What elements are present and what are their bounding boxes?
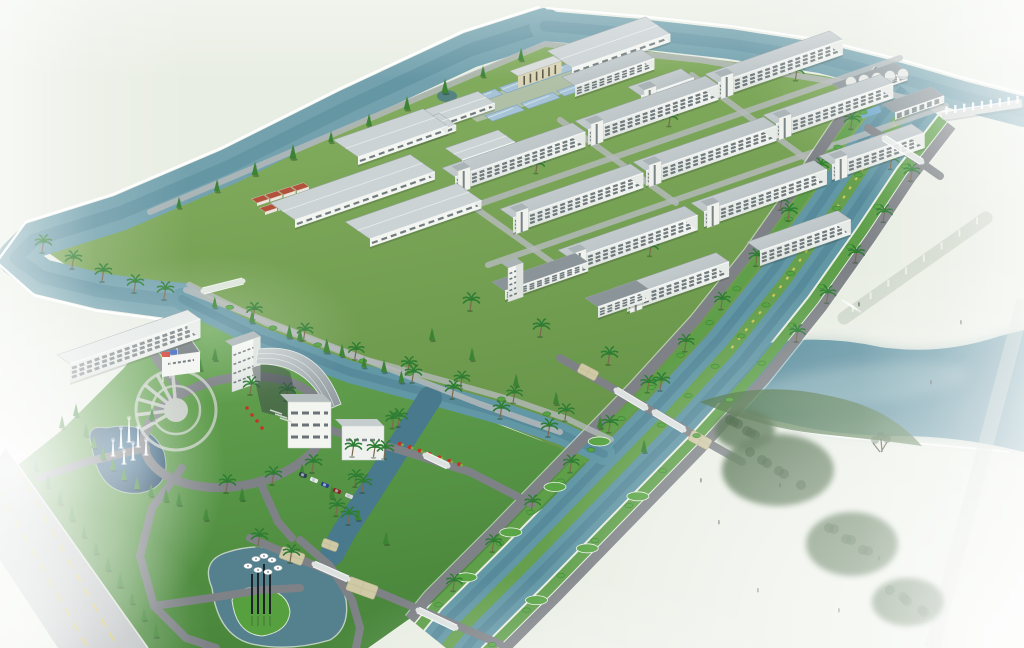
center-mist [60,255,360,405]
bush [733,287,741,291]
scene-svg [0,0,1024,648]
bush [706,321,714,325]
bush [787,271,795,275]
grass-mound [500,528,522,537]
bush [526,510,534,514]
bush [832,206,840,210]
bush [497,397,505,401]
bush [543,412,551,416]
top-fog [0,0,1024,80]
aerial-rendering-industrial-park [0,0,1024,648]
grass-mound [544,482,566,491]
